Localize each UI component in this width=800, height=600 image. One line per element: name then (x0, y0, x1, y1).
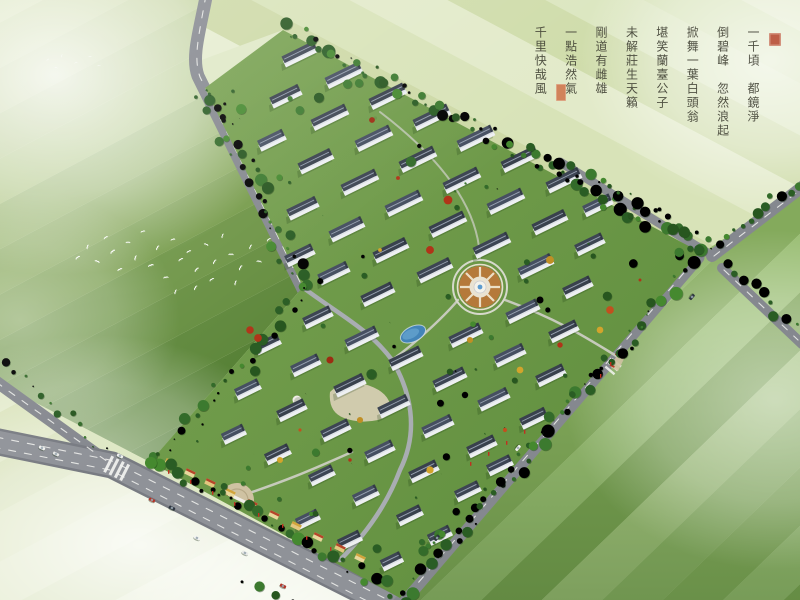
red-seal-bottom (556, 84, 566, 101)
site-plan-rendering (0, 0, 800, 600)
aerial-rendering-stage: 一千頃 都鏡淨倒碧峰 忽然浪起掀舞一葉白頭翁堪笑蘭臺公子未解莊生天籟剛道有雌雄一… (0, 0, 800, 600)
red-seal-top (769, 33, 781, 46)
light-sheen-overlay (0, 0, 800, 600)
page: { "meta": { "title": "residential-commun… (0, 0, 800, 600)
